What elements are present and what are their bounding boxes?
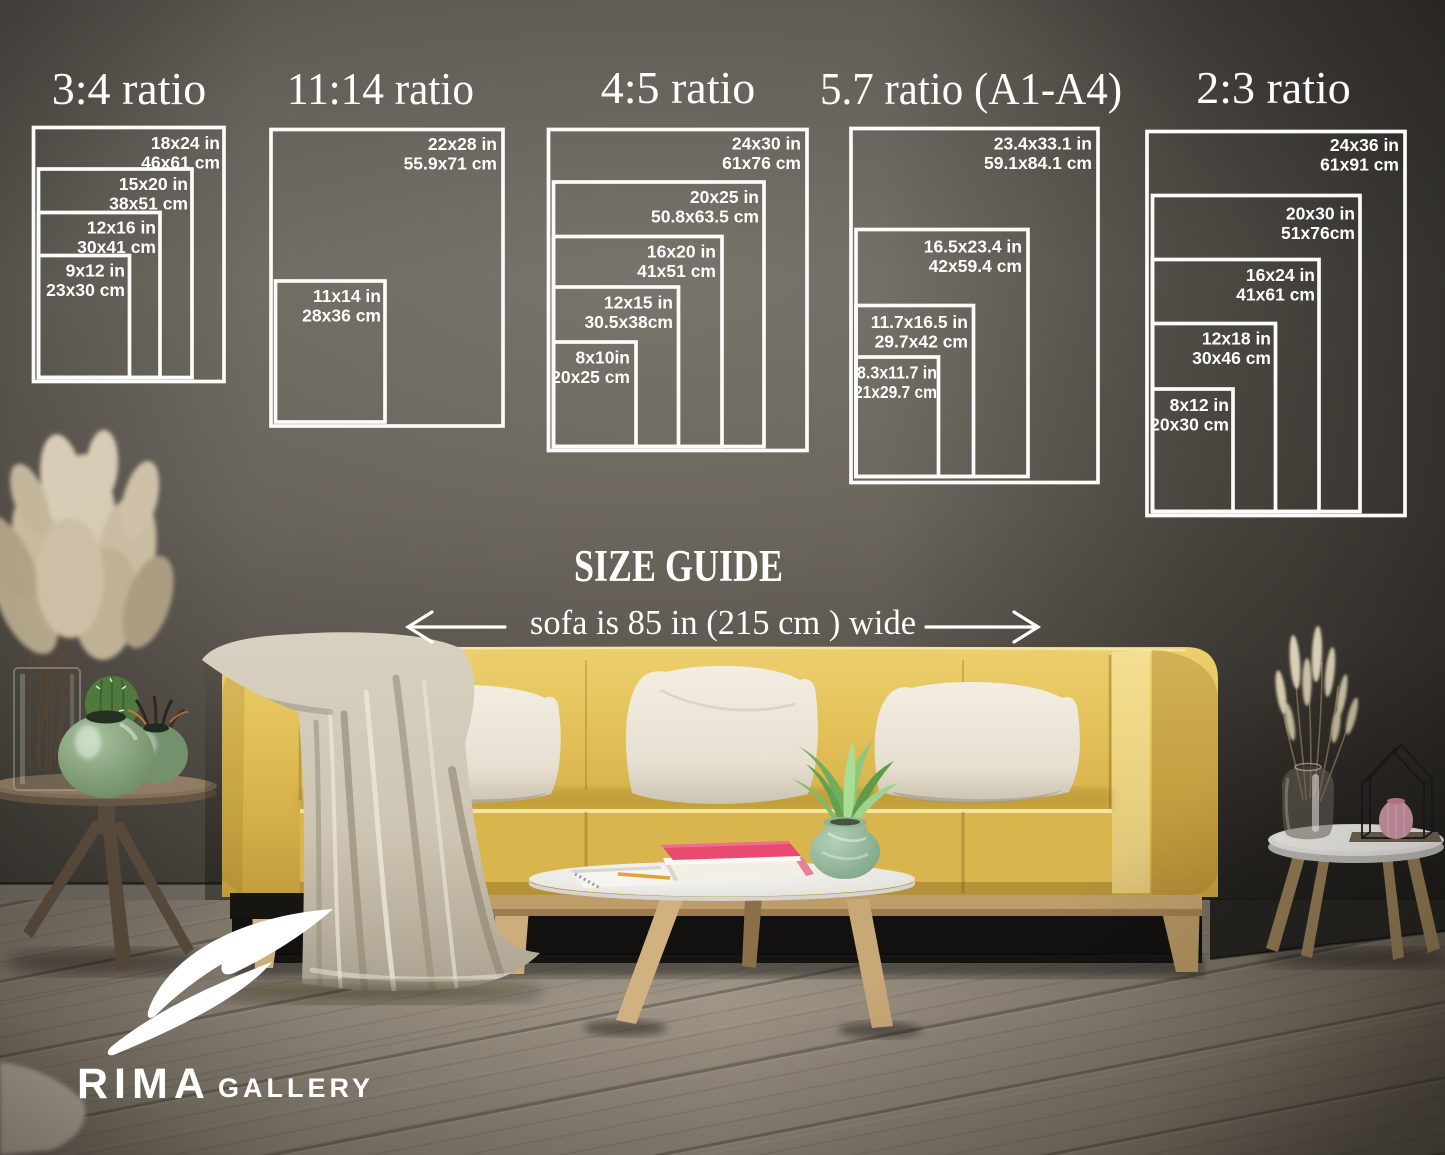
svg-text:11:14 ratio: 11:14 ratio — [287, 63, 474, 115]
svg-text:sofa is 85 in (215 cm ) wide: sofa is 85 in (215 cm ) wide — [530, 604, 916, 642]
svg-text:12x15 in: 12x15 in — [604, 293, 673, 313]
svg-text:24x30 in: 24x30 in — [732, 134, 801, 154]
svg-text:16x24 in: 16x24 in — [1246, 265, 1315, 285]
svg-text:RIMA: RIMA — [77, 1060, 211, 1108]
svg-text:30x41 cm: 30x41 cm — [77, 237, 156, 257]
svg-text:61x76 cm: 61x76 cm — [722, 153, 801, 173]
svg-text:50.8x63.5 cm: 50.8x63.5 cm — [651, 207, 759, 227]
svg-text:5.7 ratio (A1-A4): 5.7 ratio (A1-A4) — [820, 63, 1122, 115]
svg-text:9x12 in: 9x12 in — [66, 261, 125, 281]
svg-text:20x25 cm: 20x25 cm — [551, 367, 630, 387]
svg-text:8x10in: 8x10in — [576, 348, 630, 368]
svg-text:42x59.4 cm: 42x59.4 cm — [929, 256, 1022, 276]
svg-text:46x61 cm: 46x61 cm — [141, 153, 220, 173]
svg-text:3:4 ratio: 3:4 ratio — [52, 63, 207, 114]
svg-text:51x76cm: 51x76cm — [1281, 223, 1355, 243]
svg-text:20x30 in: 20x30 in — [1286, 204, 1355, 224]
svg-text:21x29.7 cm: 21x29.7 cm — [854, 382, 937, 402]
svg-text:22x28 in: 22x28 in — [428, 134, 497, 154]
svg-text:16x20 in: 16x20 in — [647, 242, 716, 262]
svg-text:30.5x38cm: 30.5x38cm — [584, 312, 673, 332]
svg-text:SIZE GUIDE: SIZE GUIDE — [574, 541, 783, 591]
svg-text:15x20 in: 15x20 in — [119, 174, 188, 194]
svg-text:41x51 cm: 41x51 cm — [637, 261, 716, 281]
svg-text:30x46 cm: 30x46 cm — [1192, 348, 1271, 368]
svg-text:38x51 cm: 38x51 cm — [109, 194, 188, 214]
svg-text:59.1x84.1 cm: 59.1x84.1 cm — [984, 153, 1092, 173]
svg-text:8.3x11.7 in: 8.3x11.7 in — [857, 363, 937, 383]
svg-text:41x61 cm: 41x61 cm — [1236, 285, 1315, 305]
svg-text:2:3 ratio: 2:3 ratio — [1196, 62, 1351, 113]
svg-text:GALLERY: GALLERY — [218, 1073, 374, 1103]
svg-text:55.9x71 cm: 55.9x71 cm — [404, 154, 497, 174]
svg-text:11x14 in: 11x14 in — [313, 286, 381, 306]
svg-text:12x18 in: 12x18 in — [1202, 329, 1271, 349]
svg-text:24x36 in: 24x36 in — [1330, 135, 1399, 155]
svg-text:28x36 cm: 28x36 cm — [302, 306, 381, 326]
svg-text:29.7x42 cm: 29.7x42 cm — [875, 332, 968, 352]
svg-text:8x12 in: 8x12 in — [1170, 395, 1229, 415]
svg-text:61x91 cm: 61x91 cm — [1320, 155, 1399, 175]
svg-text:18x24 in: 18x24 in — [151, 133, 220, 153]
svg-text:12x16 in: 12x16 in — [87, 218, 156, 238]
svg-text:23.4x33.1 in: 23.4x33.1 in — [994, 134, 1092, 154]
svg-text:11.7x16.5 in: 11.7x16.5 in — [871, 312, 968, 332]
svg-text:20x25 in: 20x25 in — [690, 187, 759, 207]
svg-text:20x30 cm: 20x30 cm — [1150, 415, 1229, 435]
svg-text:16.5x23.4 in: 16.5x23.4 in — [924, 237, 1022, 257]
svg-text:23x30 cm: 23x30 cm — [46, 280, 125, 300]
svg-text:4:5 ratio: 4:5 ratio — [601, 62, 756, 113]
